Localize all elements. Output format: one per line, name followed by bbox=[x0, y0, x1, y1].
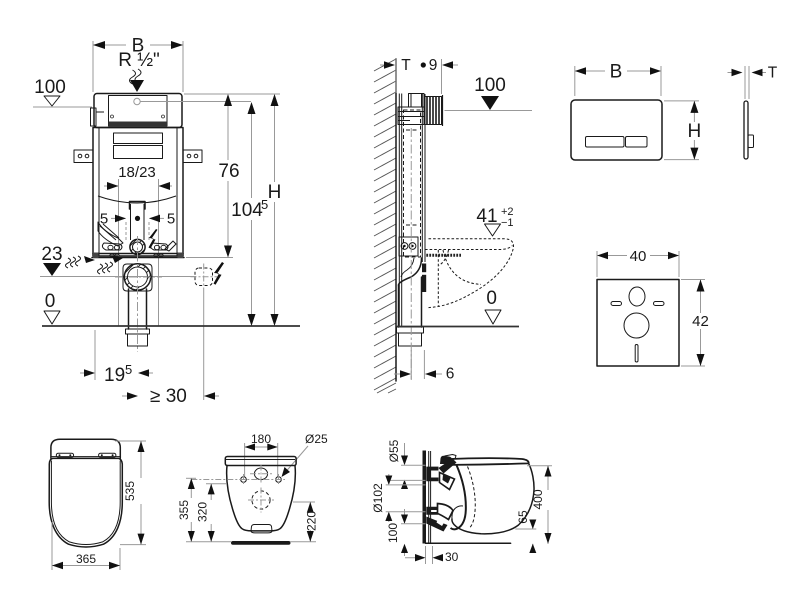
svg-text:104: 104 bbox=[231, 200, 263, 221]
svg-text:30: 30 bbox=[445, 550, 459, 564]
svg-text:23: 23 bbox=[41, 244, 62, 265]
svg-text:6: 6 bbox=[446, 366, 455, 383]
svg-text:355: 355 bbox=[177, 500, 191, 520]
svg-text:H: H bbox=[268, 182, 282, 203]
svg-text:Ø25: Ø25 bbox=[305, 432, 328, 446]
svg-text:B: B bbox=[610, 62, 623, 83]
svg-text:180: 180 bbox=[251, 432, 271, 446]
svg-text:100: 100 bbox=[474, 75, 506, 96]
svg-text:T: T bbox=[401, 57, 411, 74]
svg-text:0: 0 bbox=[45, 291, 56, 312]
svg-text:220: 220 bbox=[305, 511, 319, 531]
svg-text:100: 100 bbox=[386, 523, 400, 543]
svg-text:Ø102: Ø102 bbox=[371, 483, 385, 513]
svg-text:100: 100 bbox=[34, 77, 66, 98]
svg-text:9: 9 bbox=[429, 57, 438, 74]
svg-text:H: H bbox=[688, 121, 702, 142]
svg-text:Ø55: Ø55 bbox=[387, 439, 401, 462]
svg-text:T: T bbox=[768, 65, 778, 82]
svg-text:365: 365 bbox=[76, 552, 96, 566]
svg-text:18/23: 18/23 bbox=[118, 164, 156, 181]
svg-text:5: 5 bbox=[125, 362, 132, 377]
svg-text:65: 65 bbox=[516, 510, 530, 524]
svg-text:42: 42 bbox=[692, 313, 709, 330]
svg-text:400: 400 bbox=[531, 489, 545, 509]
svg-text:320: 320 bbox=[196, 502, 210, 522]
svg-text:R ½": R ½" bbox=[118, 50, 160, 71]
svg-text:−1: −1 bbox=[501, 217, 514, 229]
svg-text:535: 535 bbox=[123, 481, 137, 501]
svg-text:76: 76 bbox=[218, 161, 239, 182]
svg-text:40: 40 bbox=[630, 248, 647, 265]
svg-text:≥ 30: ≥ 30 bbox=[150, 386, 187, 407]
svg-text:0: 0 bbox=[486, 288, 497, 309]
svg-text:5: 5 bbox=[167, 211, 175, 228]
svg-text:19: 19 bbox=[104, 365, 125, 386]
